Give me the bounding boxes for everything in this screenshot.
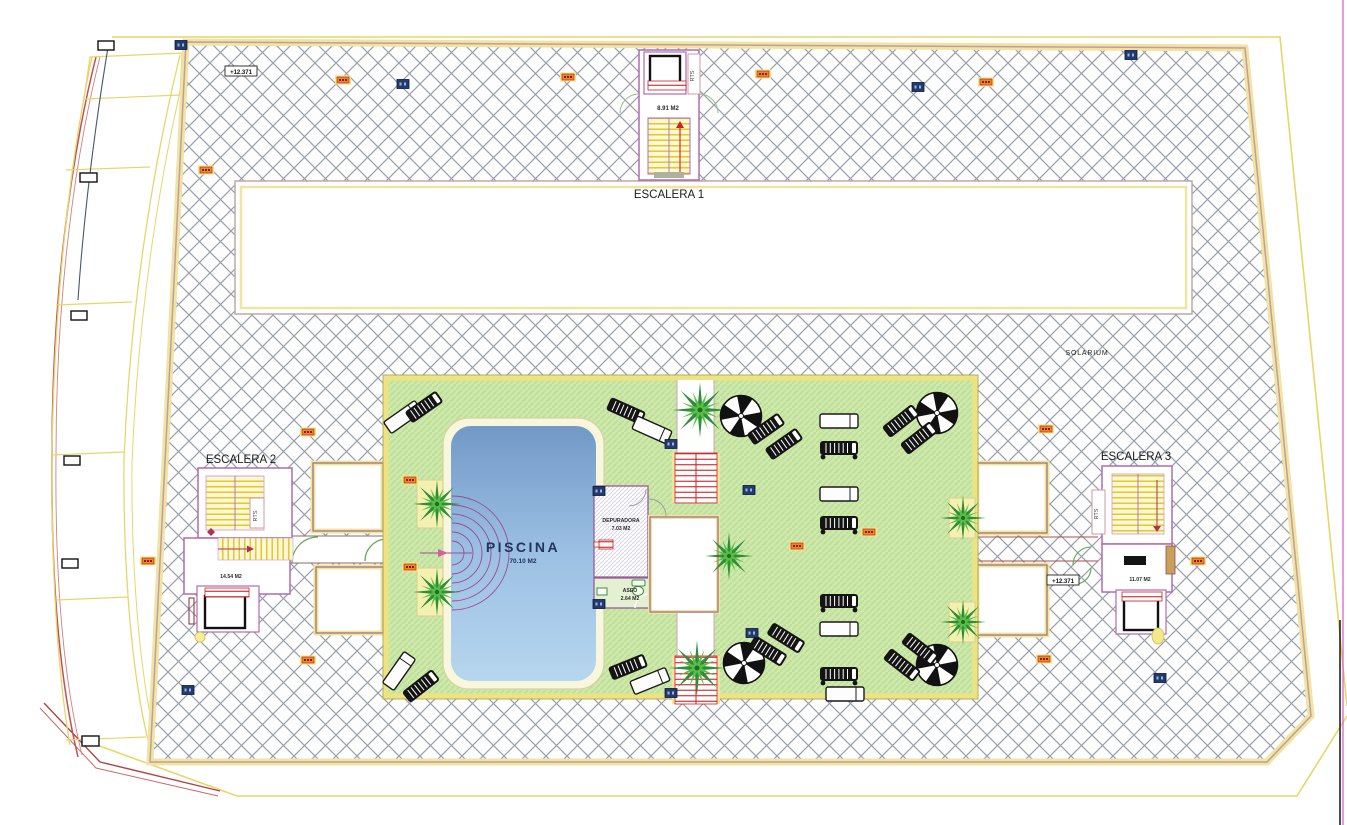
facade-red-outline-2 [56, 57, 100, 755]
terrace [382, 375, 985, 704]
tag-blue-icon [182, 686, 194, 695]
tag-blue-icon [397, 80, 409, 89]
palm-icon [705, 532, 753, 580]
tag-blue-icon [665, 440, 677, 449]
tag-orange-icon [560, 73, 576, 82]
stair-structure-top [672, 453, 720, 503]
pump-inlet [594, 542, 599, 547]
floor-plan-sheet: ESCALERA 1 8.91 M2 RTS ESCALERA 2 14.54 … [0, 0, 1347, 825]
escalera1-area: 8.91 M2 [657, 106, 679, 112]
tag-orange-icon [1036, 655, 1052, 664]
aseo-area: 2.64 M2 [621, 596, 640, 602]
tag-orange-icon [300, 656, 316, 665]
box-band [313, 463, 383, 531]
tag-orange-icon [1038, 425, 1054, 434]
tag-orange-icon [402, 476, 418, 485]
patio-void-outline [235, 181, 1192, 314]
aseo-label: ASEO [623, 588, 638, 594]
tag-orange-icon [1190, 557, 1206, 566]
patio-void [235, 181, 1192, 314]
lounger-white-icon [826, 687, 864, 701]
elevation-marker-right: +12.371 [1052, 579, 1075, 585]
facade-columns [62, 41, 114, 746]
palm-icon [940, 495, 986, 541]
tag-blue-icon [746, 629, 758, 638]
tag-blue-icon [665, 689, 677, 698]
tag-orange-icon [978, 78, 994, 87]
sink-icon [597, 588, 607, 595]
solarium-label: SOLARIUM [1066, 350, 1109, 357]
toilet-icon [632, 580, 645, 586]
elevator-mechanism [648, 81, 686, 90]
palm-icon [413, 480, 461, 528]
escalera3-label: ESCALERA 3 [1101, 451, 1171, 463]
lounger-white-icon [820, 622, 858, 636]
escalera3-area: 11.07 M2 [1129, 577, 1150, 583]
escalera2-area: 14.54 M2 [220, 574, 242, 580]
depuradora-label: DEPURADORA [602, 518, 639, 524]
depuradora-area: 7.03 M2 [612, 526, 631, 532]
tag-blue-icon [1125, 51, 1137, 60]
machine-room [649, 499, 718, 612]
elevator-car [650, 56, 680, 84]
elevator-car [205, 596, 245, 628]
piscina-area: 70.10 M2 [509, 558, 536, 565]
duct [1166, 546, 1175, 574]
escalera3-rts: RTS [1094, 508, 1100, 519]
tag-blue-icon [175, 41, 187, 50]
palm-icon [940, 599, 986, 645]
tag-orange-icon [755, 70, 771, 79]
room-tag-dark [1124, 556, 1146, 565]
tag-orange-icon [300, 428, 316, 437]
tag-blue-icon [912, 83, 924, 92]
elevator-mechanism [1122, 592, 1162, 601]
piscina-label: PISCINA [486, 539, 560, 555]
aseo-room [593, 578, 650, 609]
machine-room-band [650, 517, 718, 612]
rail [672, 453, 675, 503]
tag-orange-icon [198, 166, 214, 175]
tag-orange-icon [789, 542, 805, 551]
escalera2-label: ESCALERA 2 [206, 454, 276, 466]
box-band [316, 567, 383, 633]
palm-icon [669, 640, 724, 695]
tag-orange-icon [140, 557, 156, 566]
tag-orange-icon [335, 76, 351, 85]
pump-body [599, 540, 613, 549]
tag-blue-icon [743, 486, 755, 495]
drain-marker [195, 632, 205, 642]
escalera2-rts: RTS [253, 510, 259, 521]
rail [717, 453, 720, 503]
facade-outer-yellow [52, 57, 92, 745]
tag-blue-icon [1154, 674, 1166, 683]
lounger-white-icon [820, 487, 858, 501]
escalera1-rts: RTS [690, 70, 696, 81]
elevator-mechanism [205, 588, 249, 597]
corridor-floor [677, 613, 714, 656]
facade-top-panel [84, 53, 182, 99]
plan-canvas: ESCALERA 1 8.91 M2 RTS ESCALERA 2 14.54 … [0, 0, 1347, 825]
palm-icon [413, 568, 461, 616]
box-band [977, 565, 1047, 635]
box-band [977, 463, 1047, 533]
tag-orange-icon [402, 563, 418, 572]
rail [717, 656, 720, 704]
left-corridor [290, 536, 388, 563]
facade-blue-line [78, 41, 109, 300]
lounger-white-icon [820, 414, 858, 428]
palm-icon [672, 382, 727, 437]
landing-bar [654, 172, 684, 178]
service-tag-icon [593, 600, 605, 609]
elevation-marker-top: +12.371 [230, 70, 253, 76]
service-tag-icon [593, 487, 605, 496]
escalera1-label: ESCALERA 1 [634, 189, 704, 201]
tag-orange-icon [861, 528, 877, 537]
elevator-car [1124, 600, 1158, 630]
landing-room [1102, 544, 1172, 592]
drain-marker [1152, 628, 1164, 644]
